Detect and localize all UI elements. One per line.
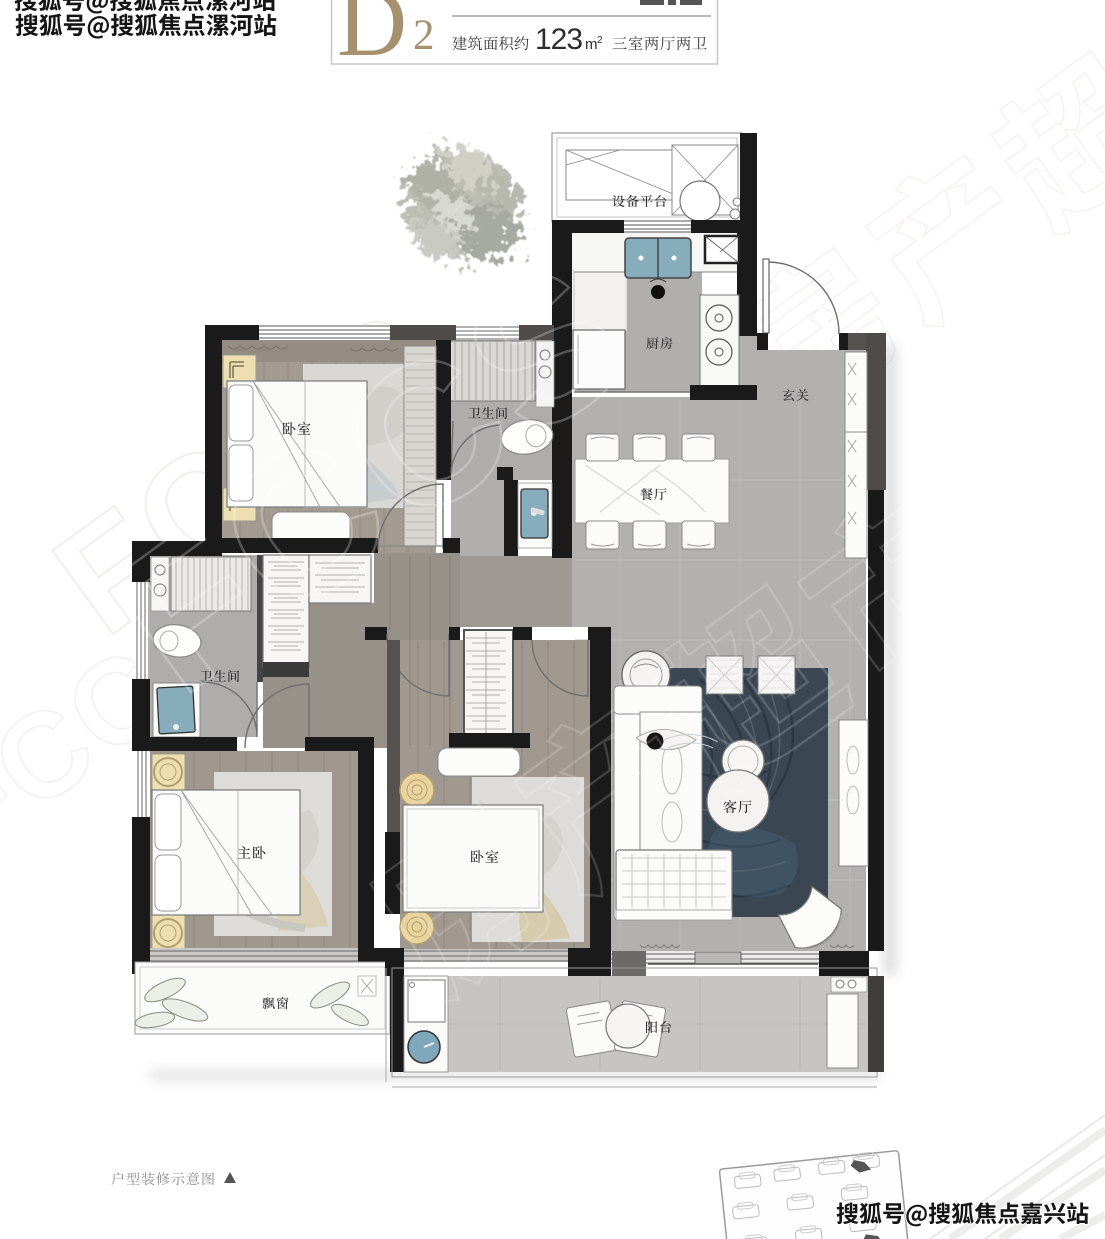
svg-text:2: 2 bbox=[597, 35, 603, 46]
svg-text:2: 2 bbox=[413, 12, 435, 59]
svg-text:123: 123 bbox=[535, 23, 582, 56]
svg-text:m: m bbox=[585, 36, 598, 53]
svg-text:D: D bbox=[337, 0, 407, 76]
